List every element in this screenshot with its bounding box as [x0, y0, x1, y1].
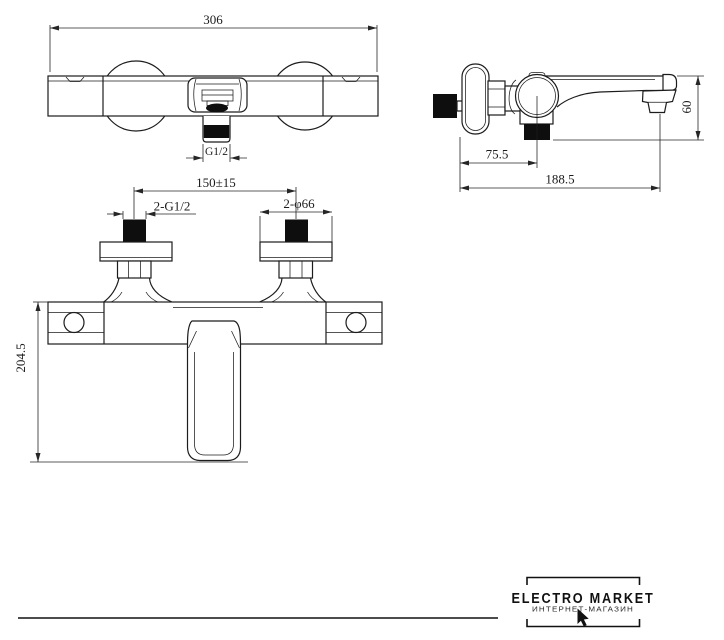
dim-wall-to-center-label: 75.5 [486, 147, 509, 162]
center-cartridge [188, 78, 247, 113]
dim-outlet-thread-label: G1/2 [205, 146, 228, 158]
aerator [643, 90, 677, 113]
right-inlet-connector [260, 220, 333, 303]
installation-view: 150±15 2-G1/2 2-φ66 [13, 175, 382, 462]
bottom-outlet [203, 116, 230, 142]
dim-306: 306 [50, 12, 377, 72]
dim-spout-height-label: 60 [679, 101, 694, 114]
dim-total-height-label: 204.5 [13, 343, 28, 372]
dim-wall-to-tip-label: 188.5 [545, 172, 574, 187]
electro-market-logo: ELECTRO MARKET ИНТЕРНЕТ-МАГАЗИН [512, 578, 655, 627]
dim-inlet-spacing-label: 150±15 [196, 175, 236, 190]
cartridge-seal [206, 104, 228, 113]
handle-wand [188, 321, 241, 461]
dim-2g12: 2-G1/2 [107, 199, 196, 220]
left-inlet-connector [100, 220, 172, 303]
front-view: 306 G1/2 [48, 12, 378, 162]
dim-75-5: 75.5 [460, 137, 537, 192]
technical-drawing-page: 306 G1/2 [0, 0, 724, 640]
dim-inlet-thread-label: 2-G1/2 [154, 199, 191, 214]
faucet-technical-drawing: 306 G1/2 [0, 0, 724, 640]
side-view: 60 75.5 188.5 [433, 64, 704, 192]
dim-g12-outlet: G1/2 [186, 144, 247, 162]
hex-nut [488, 81, 505, 115]
dim-flange-diameter-label: 2-φ66 [283, 196, 315, 211]
dim-60: 60 [553, 76, 704, 140]
dim-overall-width-label: 306 [203, 12, 223, 27]
logo-subtitle-text: ИНТЕРНЕТ-МАГАЗИН [532, 607, 634, 614]
wall-nipple [433, 94, 457, 118]
logo-frame-top [527, 578, 640, 586]
logo-brand-text: ELECTRO MARKET [512, 591, 655, 607]
